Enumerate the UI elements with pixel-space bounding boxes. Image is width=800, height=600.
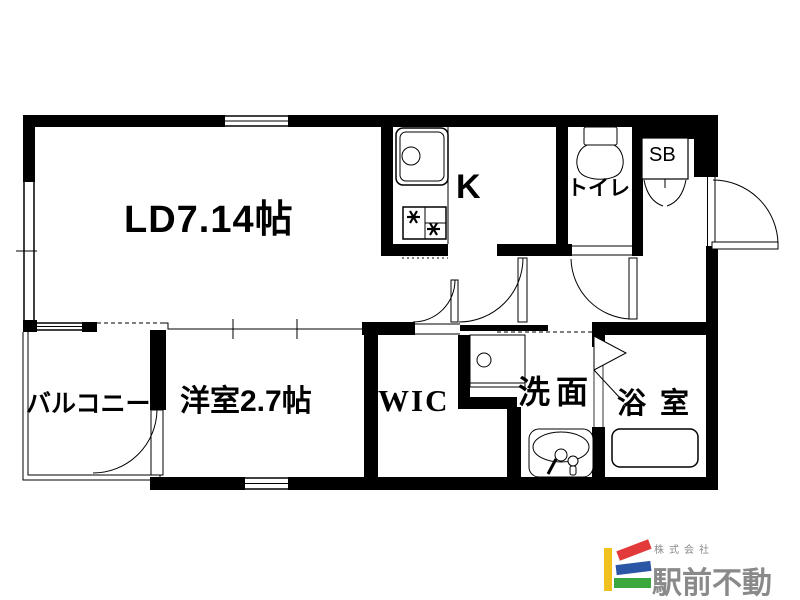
door-swing-arc-icon	[571, 259, 630, 319]
entrance-door-leaf	[712, 242, 778, 249]
wall-wic-right	[458, 335, 470, 407]
kitchen-sink-icon	[396, 128, 448, 185]
company-name-block: 株式会社 駅前不動産	[652, 541, 800, 600]
logo-blue-bar-icon	[616, 561, 652, 575]
wall-balcony	[150, 330, 166, 410]
ld-room-label: LD7.14帖	[124, 201, 294, 239]
wall-bathroom-top	[592, 322, 718, 335]
balcony-door-leaf	[151, 410, 163, 475]
wall	[23, 115, 225, 127]
balcony-label: バルコニー	[26, 392, 151, 417]
company-logo: 株式会社 駅前不動産	[600, 539, 800, 595]
shoe-box-label: SB	[649, 145, 676, 165]
wall	[706, 246, 718, 490]
wall	[23, 320, 37, 332]
wall-kitchen-left	[381, 115, 393, 244]
washroom-label: 洗面	[518, 376, 594, 408]
bedroom-label: 洋室2.7帖	[180, 387, 312, 417]
stove-icon	[403, 207, 446, 239]
window-bedroom	[245, 478, 288, 489]
double-door-arc-icon	[644, 179, 686, 206]
wall-thin	[460, 325, 548, 331]
toilet-door-leaf	[629, 258, 637, 319]
door-swing-arc-icon	[413, 280, 455, 322]
logo-yellow-bar-icon	[604, 548, 612, 591]
wall-toilet-right	[632, 115, 643, 256]
wall	[592, 427, 605, 477]
wall-washroom-left	[507, 407, 521, 477]
toilet-bowl-icon	[577, 127, 623, 179]
wall	[23, 115, 35, 182]
wall	[150, 477, 245, 490]
kitchen-label: K	[456, 170, 481, 204]
company-prefix: 株式会社	[654, 541, 800, 556]
wall	[82, 322, 97, 332]
wall	[288, 477, 718, 490]
logo-green-bar-icon	[614, 578, 651, 588]
bathtub-icon	[612, 429, 698, 467]
wic-label: WIC	[378, 385, 449, 416]
wall-wic-left	[364, 335, 378, 477]
wall-sb-niche	[632, 127, 718, 139]
logo-red-bar-icon	[616, 539, 651, 561]
company-name: 駅前不動産	[652, 558, 800, 600]
washbasin-icon	[529, 429, 593, 477]
wall	[362, 322, 415, 335]
washing-machine-pan-icon	[470, 335, 525, 387]
wall	[381, 244, 448, 256]
toilet-label: トイレ	[567, 178, 630, 199]
floorplan-page: LD7.14帖 K トイレ SB バルコニー 洋室2.7帖 WIC 洗面 浴室 …	[0, 0, 800, 600]
door-swing-arc-icon	[459, 258, 523, 322]
entrance-door-arc	[713, 180, 778, 244]
window-top	[225, 116, 288, 126]
wall	[288, 115, 718, 127]
window-ld-balcony	[37, 323, 82, 330]
bathroom-label: 浴室	[617, 390, 703, 419]
floorplan-drawing	[0, 0, 800, 600]
ld-bedroom-boundary	[160, 323, 363, 329]
door-swing-arc-icon	[93, 410, 157, 473]
window-left	[16, 182, 37, 320]
